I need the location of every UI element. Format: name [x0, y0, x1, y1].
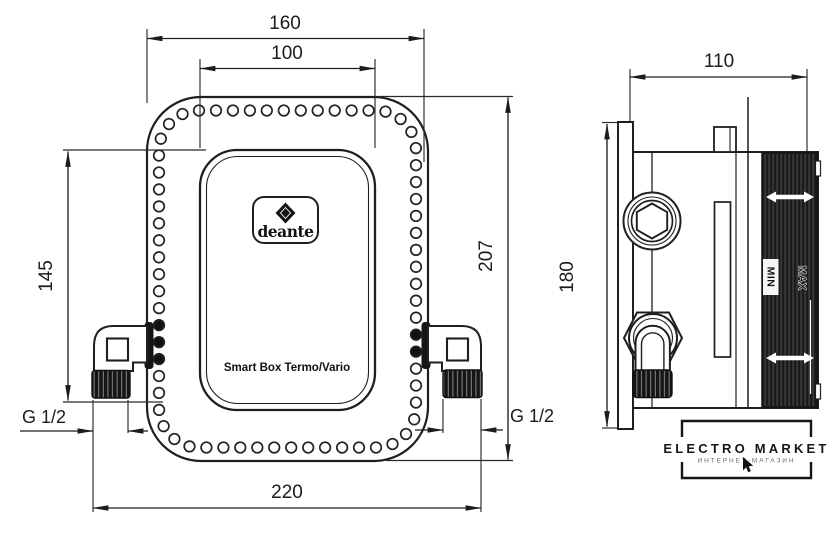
mounting-hole [154, 167, 165, 178]
mounting-hole [411, 380, 422, 391]
mounting-hole [320, 442, 331, 453]
side-thread-g12 [633, 370, 672, 398]
left-thread-g12 [92, 371, 130, 399]
mounting-hole-filled [154, 337, 165, 348]
mounting-hole [411, 245, 422, 256]
side-slot [715, 202, 731, 357]
mounting-hole [354, 442, 365, 453]
side-flange-plate [618, 122, 633, 429]
watermark-title: ELECTRO MARKET [663, 441, 829, 456]
mounting-hole [401, 429, 412, 440]
mounting-hole [395, 114, 406, 125]
technical-drawing-page: deante Smart Box Termo/Vario 160 100 145 [0, 0, 840, 534]
mounting-hole [411, 312, 422, 323]
sleeve-notch-top [816, 161, 821, 176]
mounting-hole [411, 397, 422, 408]
mounting-hole-filled [154, 320, 165, 331]
mounting-hole [411, 160, 422, 171]
mounting-hole [371, 442, 382, 453]
mounting-hole [156, 133, 167, 144]
mounting-hole [154, 184, 165, 195]
mounting-hole [235, 442, 246, 453]
dim-180-label: 180 [557, 261, 578, 293]
right-thread-g12 [443, 370, 482, 398]
mounting-hole [411, 363, 422, 374]
mounting-hole [279, 105, 290, 116]
front-view: deante Smart Box Termo/Vario 160 100 145 [20, 13, 554, 512]
mounting-hole [164, 119, 175, 130]
mounting-hole [184, 441, 195, 452]
dimension-180: 180 [557, 123, 618, 429]
mounting-hole [228, 105, 239, 116]
mounting-hole [329, 105, 340, 116]
mounting-hole [154, 286, 165, 297]
product-label: Smart Box Termo/Vario [224, 362, 350, 374]
mounting-hole [154, 303, 165, 314]
mounting-hole [411, 194, 422, 205]
dim-110-label: 110 [704, 51, 734, 72]
mounting-hole [154, 252, 165, 263]
thread-callout-right: G 1/2 [415, 399, 554, 433]
max-label: MAX [796, 266, 808, 291]
mounting-hole [269, 442, 280, 453]
mounting-hole [154, 150, 165, 161]
mounting-hole [411, 228, 422, 239]
mounting-hole [380, 106, 391, 117]
mounting-hole [154, 201, 165, 212]
side-top-tab [714, 127, 736, 152]
mounting-hole [411, 177, 422, 188]
thread-left-label: G 1/2 [22, 407, 66, 427]
mounting-hole [169, 434, 180, 445]
mounting-hole [154, 388, 165, 399]
mounting-hole-filled [154, 354, 165, 365]
mounting-hole [252, 442, 263, 453]
mounting-hole [411, 295, 422, 306]
thread-callout-left: G 1/2 [20, 400, 148, 433]
mounting-hole [411, 262, 422, 273]
dim-100-label: 100 [271, 43, 303, 64]
mounting-hole [245, 105, 256, 116]
mounting-hole [411, 279, 422, 290]
mounting-hole [154, 235, 165, 246]
dim-207-label: 207 [476, 240, 497, 272]
dim-145-label: 145 [36, 260, 57, 292]
mounting-hole [346, 105, 357, 116]
mounting-hole [409, 414, 420, 425]
mounting-hole [262, 105, 273, 116]
dim-160-label: 160 [269, 13, 301, 34]
mounting-hole-filled [411, 329, 422, 340]
mounting-hole [363, 105, 374, 116]
sleeve-notch-bottom [816, 384, 821, 399]
mounting-hole [312, 105, 323, 116]
mounting-hole [286, 442, 297, 453]
drawing-canvas: deante Smart Box Termo/Vario 160 100 145 [0, 0, 840, 534]
mounting-hole [337, 442, 348, 453]
dim-220-label: 220 [271, 482, 303, 503]
mounting-hole [154, 405, 165, 416]
hex-socket-icon [637, 204, 667, 239]
mounting-hole [154, 371, 165, 382]
mounting-hole [211, 105, 222, 116]
side-view: MIN MAX 110 [557, 51, 821, 429]
mounting-hole [303, 442, 314, 453]
mounting-hole [194, 105, 205, 116]
watermark-frame-top [682, 421, 811, 437]
brand-logo: deante [253, 197, 318, 243]
mounting-hole [411, 143, 422, 154]
mounting-hole [154, 269, 165, 280]
mounting-hole [296, 105, 307, 116]
mounting-hole [411, 211, 422, 222]
min-label: MIN [764, 267, 776, 288]
brand-logo-text: deante [257, 222, 314, 241]
watermark: ELECTRO MARKET ИНТЕРНЕТ-МАГАЗИН [663, 421, 829, 478]
mounting-hole [177, 109, 188, 120]
mounting-hole [387, 439, 398, 450]
thread-right-label: G 1/2 [510, 406, 554, 426]
mounting-hole [218, 442, 229, 453]
mounting-hole [406, 127, 417, 138]
mounting-hole [154, 218, 165, 229]
mounting-hole-filled [411, 346, 422, 357]
right-fitting-square-socket [447, 339, 468, 361]
mounting-hole [201, 442, 212, 453]
mounting-hole [158, 421, 169, 432]
left-fitting-square-socket [107, 339, 128, 361]
